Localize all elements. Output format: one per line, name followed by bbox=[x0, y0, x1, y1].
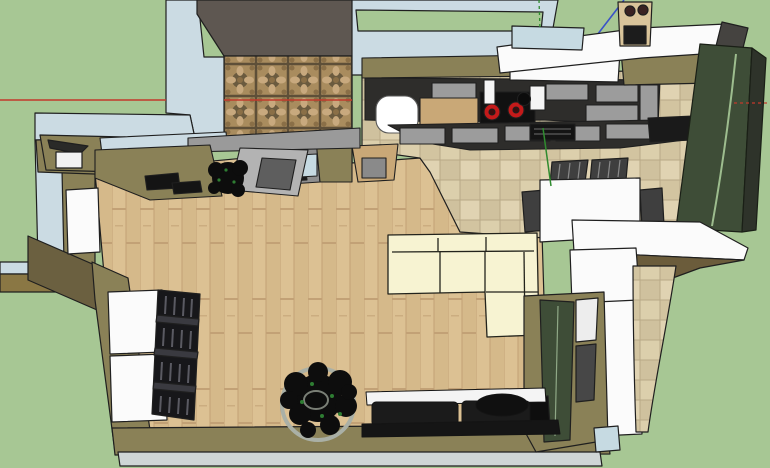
burner-left-center bbox=[489, 109, 495, 115]
burner-right-center bbox=[513, 107, 519, 113]
balcony-wall-face[interactable] bbox=[197, 0, 352, 56]
br-corner-blue bbox=[594, 426, 620, 452]
appliance-right-black bbox=[648, 116, 694, 142]
cabinet-top-2 bbox=[546, 84, 588, 100]
sideboard-drawer-white bbox=[56, 152, 82, 168]
model-viewport[interactable] bbox=[0, 0, 770, 468]
microwave-top bbox=[586, 105, 638, 122]
cabinet-top-3 bbox=[596, 85, 638, 102]
laptop-2[interactable] bbox=[172, 181, 202, 194]
island-top-5 bbox=[606, 124, 650, 139]
white-door-left[interactable] bbox=[66, 188, 100, 254]
br-shelf-white bbox=[576, 298, 598, 342]
corner-bin-gray bbox=[362, 158, 386, 178]
grill-black bbox=[530, 124, 575, 140]
bottom-outer-trim bbox=[118, 452, 602, 466]
balcony-tile-floor[interactable] bbox=[224, 56, 352, 140]
cabinet-top-4 bbox=[640, 85, 658, 121]
figure-knob-left bbox=[625, 6, 635, 16]
door-panel-inner bbox=[256, 158, 296, 190]
white-canister bbox=[530, 86, 545, 110]
potted-plant-small[interactable] bbox=[208, 160, 248, 197]
black-kettle bbox=[518, 93, 531, 106]
console-round-black bbox=[476, 394, 528, 416]
figure-knob-right bbox=[638, 5, 648, 15]
glass-pane[interactable] bbox=[512, 26, 584, 50]
br-shelf-dark bbox=[576, 344, 596, 402]
island-top-1 bbox=[400, 128, 445, 144]
white-jug bbox=[484, 80, 495, 104]
island-top-2 bbox=[452, 128, 498, 143]
figure-base-black bbox=[624, 26, 646, 44]
